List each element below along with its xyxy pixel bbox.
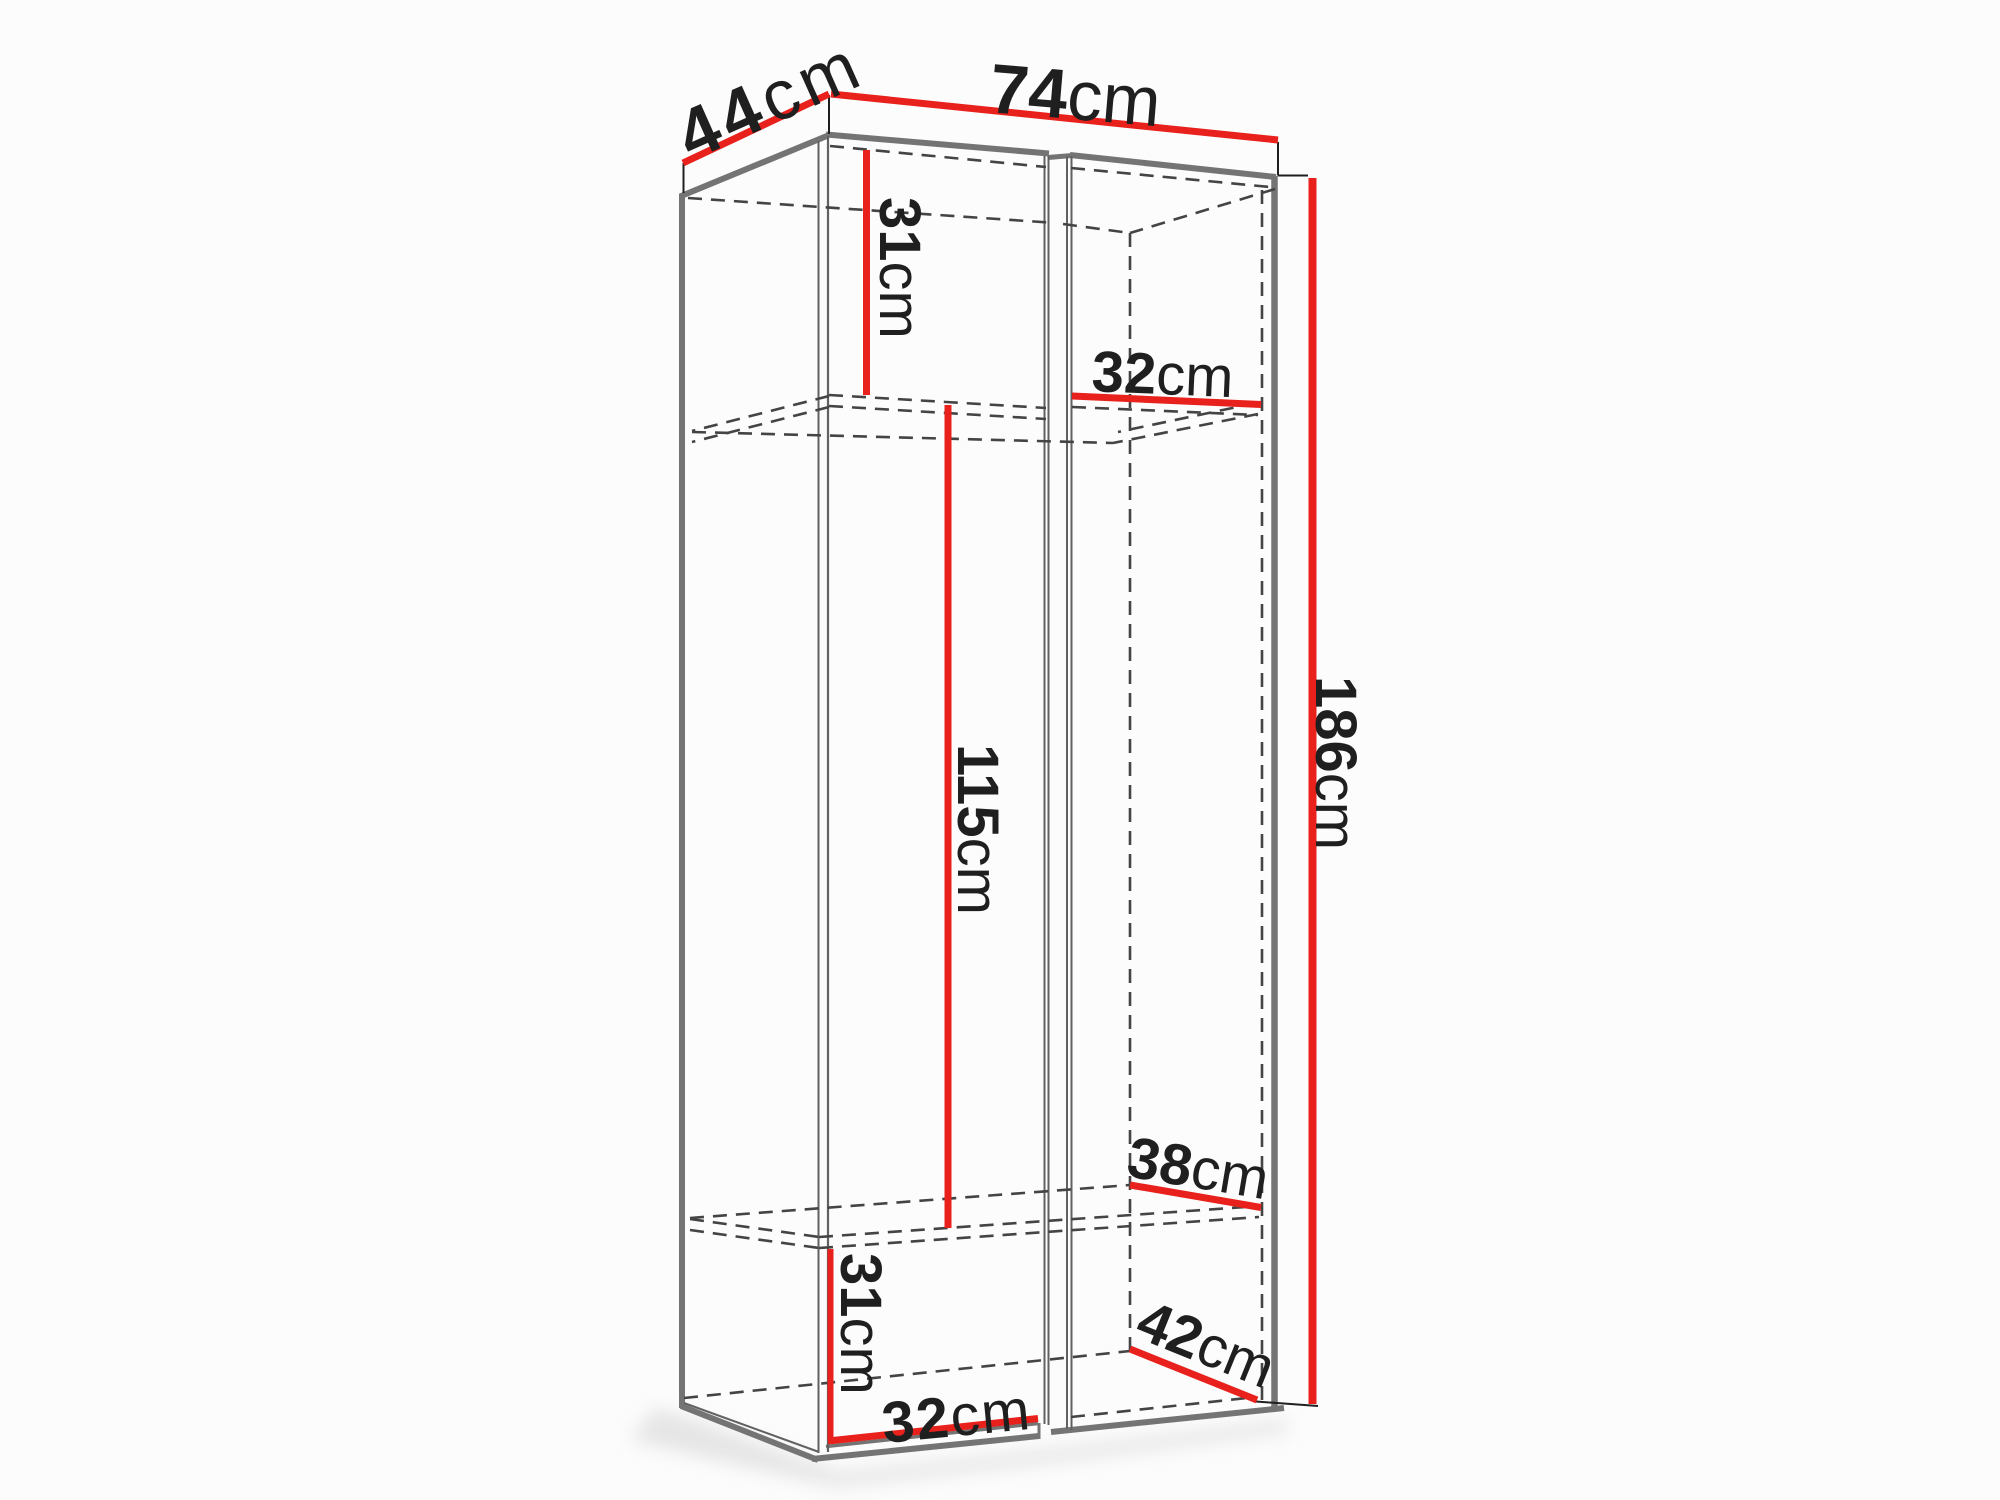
svg-text:31cm: 31cm bbox=[867, 197, 932, 339]
svg-text:31cm: 31cm bbox=[828, 1253, 893, 1395]
svg-text:32cm: 32cm bbox=[1090, 339, 1235, 410]
svg-text:74cm: 74cm bbox=[987, 49, 1164, 141]
svg-text:186cm: 186cm bbox=[1303, 676, 1368, 850]
svg-text:115cm: 115cm bbox=[945, 744, 1010, 915]
